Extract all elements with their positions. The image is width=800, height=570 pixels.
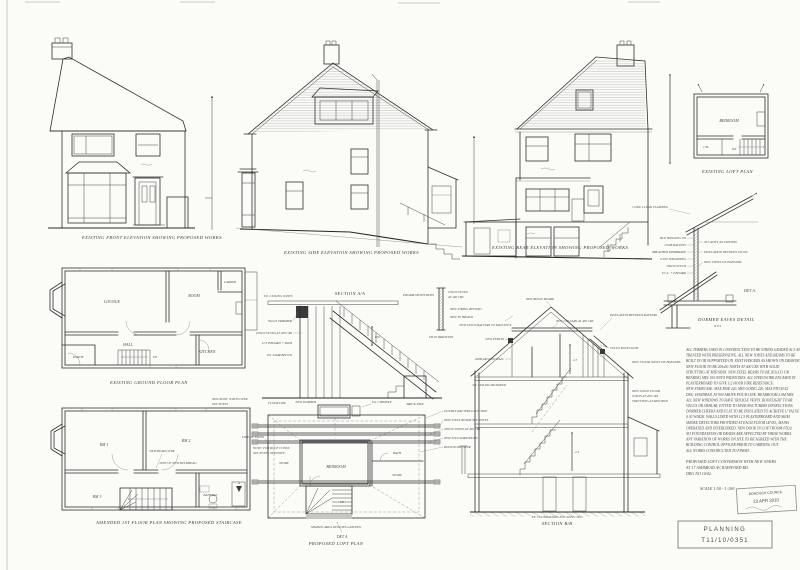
balusters — [344, 307, 424, 380]
notes-block: ALL TIMBERS USED IN CONSTRUCTION TO BE S… — [685, 348, 800, 453]
chimney — [324, 45, 339, 64]
anno-det-5: 100x50 STUDS — [666, 264, 686, 268]
sheet-svg: EXISTING FRONT ELEVATION SHOWING PROPOSE… — [0, 0, 800, 570]
anno-stud-2: AT 400 CRS — [447, 295, 464, 299]
title-line-3: DRG NO 10/02. — [685, 471, 712, 476]
anno-loft-4: NEW STUD PARTITIONS — [443, 436, 478, 440]
anno-pier: BRICK PIER — [407, 402, 424, 406]
anno-det-3: BREATHER MEMBRANE — [652, 250, 686, 254]
note-line: PLASTERBOARD TO GIVE 1/2 HOUR FIRE RESIS… — [685, 382, 774, 386]
front-windows — [72, 134, 160, 156]
caption-det-a: DORMER EAVES DETAIL — [697, 317, 754, 322]
caption-first: AMENDED 1ST FLOOR PLAN SHOWING PROPOSED … — [95, 520, 242, 525]
loft-floor — [475, 377, 628, 381]
note-roof-joists-2: SEE NOTES — [212, 402, 228, 406]
room-label-larder: LARDER — [223, 280, 236, 284]
caption-stair-section: SECTION A/A — [335, 291, 365, 296]
room-label-lounge: LOUNGE — [103, 299, 121, 304]
note-line: ALL NEW WINDOWS TO HAVE TRICKLE VENTS. R… — [685, 398, 793, 402]
bay — [50, 282, 65, 318]
lower-flight — [520, 420, 560, 475]
rear-windows-first — [526, 134, 611, 161]
note-line: BUILT IN OR SUPPORTED ON JOIST HANGERS A… — [686, 359, 800, 363]
anno-det-1: TILE HANGING ON — [659, 236, 687, 240]
stud-detail: 100x50 STUDS AT 400 CRS P.BOARD BOTH SID… — [402, 288, 468, 339]
front-bay-section — [460, 446, 467, 474]
anno-loft-5: ROOFLIGHT OVER — [443, 445, 471, 449]
external-stair — [604, 227, 628, 257]
handrail — [400, 203, 445, 225]
plan-windows — [80, 268, 210, 368]
anno-ceiling: EX. CEILING RETAINED — [472, 383, 507, 387]
room-label-porch: PORCH — [72, 355, 84, 359]
pier — [573, 477, 586, 511]
dim-first: 2.3 — [575, 450, 579, 454]
anno-det-7: CODE 4 LEAD FLASHING — [632, 205, 668, 209]
note-line: NEW STAIRCASE: MAX RISE 220, MIN GOING 2… — [685, 387, 788, 392]
anno-studs: 100x50 STUDS AT 400 CRS — [256, 331, 292, 335]
side-windows — [286, 149, 368, 209]
stair-label-up: UP — [153, 355, 157, 359]
anno-det-2: 25x38 BATTENS — [664, 243, 686, 247]
room-label-rm1: RM 1 — [99, 442, 109, 447]
note-bulkhead: LINE OF NEW BULKHEAD — [159, 461, 198, 465]
scribble — [303, 170, 316, 172]
note-line: NEW FLOOR TO BE 200x50 JOISTS AT 400 CRS… — [685, 365, 780, 369]
anno-det-4: 9 PLY SHEATHING — [660, 257, 687, 261]
chimney-breast — [757, 112, 765, 126]
steps — [380, 386, 404, 398]
handrail — [336, 301, 439, 382]
trimmer — [296, 306, 308, 318]
front-elevation: EXISTING FRONT ELEVATION SHOWING PROPOSE… — [48, 38, 222, 240]
anno-ex-stair: EX. STAIR BELOW — [266, 353, 292, 357]
ground-floor-plan: LOUNGE ROOM KITCHEN HALL PORCH LARDER UP… — [50, 268, 257, 385]
stair-label-dn: DN — [731, 147, 737, 151]
note-line: ALL WORKS CONSTRUCTED TO FINISH. — [685, 449, 750, 453]
landing-shading — [306, 514, 352, 519]
porch — [238, 169, 258, 227]
anno-floor-3: STRUTTING AT MID SPAN — [632, 399, 669, 403]
note-roof-joists-1: NEW ROOF JOISTS OVER — [211, 397, 248, 401]
note-line: BEARING MIN 100 ONTO PADSTONES. ALL STEE… — [686, 376, 796, 380]
note-line: OPERATED AND INTERLINKED. NEW DOOR TO LO… — [686, 426, 793, 430]
anno-dormer: NEW DORMER — [294, 400, 316, 404]
anno-trimmer: 50x225 TRIMMER — [268, 319, 292, 323]
bay — [51, 424, 65, 456]
stair-string — [330, 311, 436, 399]
anno-stud-3: P.BOARD BOTH SIDES — [402, 293, 435, 297]
det-a-label: DET A. — [743, 288, 756, 293]
anno-landing-shade: SHADED AREA DENOTES LANDING — [311, 525, 362, 529]
anno-insulation: INSULATION BETWEEN RAFTERS — [609, 313, 657, 317]
room-label-bath: BATH — [393, 451, 402, 455]
note-line: ALL TIMBERS USED IN CONSTRUCTION TO BE S… — [685, 348, 800, 352]
caption-proposed-loft: PROPOSED LOFT PLAN — [308, 541, 364, 546]
anno-ashlar: ASHLAR STUD WALL — [474, 357, 504, 361]
anno-dim-850: 850 — [375, 335, 380, 339]
room-label-bedroom: BEDROOM — [326, 464, 346, 469]
room-label-bath: BATH RM — [203, 493, 217, 497]
ground-floor — [468, 474, 660, 478]
caption-ground: EXISTING GROUND FLOOR PLAN — [109, 380, 188, 385]
caption-section-bb: SECTION B/B — [542, 521, 573, 526]
joist-diagonal — [660, 272, 717, 313]
outbuilding — [464, 219, 520, 256]
bay-window — [66, 162, 130, 223]
anno-stud-1: 100x50 STUDS — [448, 290, 468, 294]
caption-rear: EXISTING REAR ELEVATION SHOWING PROPOSED… — [491, 245, 629, 250]
room-label-rm3: RM 3 — [92, 494, 102, 499]
anno-foundations: EX. FOUNDATIONS NOT AFFECTED — [531, 515, 583, 519]
planning-label: PLANNING — [704, 527, 747, 533]
note-line: DORMER CHEEKS AND FLAT TO BE INSULATED T… — [685, 410, 800, 414]
anno-floor-1: NEW 200x50 FLOOR — [631, 389, 660, 393]
roof-hips — [268, 415, 425, 518]
det-a-scale: N.T.S. — [713, 324, 722, 328]
anno-chimney: EX. CHIMNEY — [371, 400, 393, 404]
stamp-signature — [745, 505, 781, 511]
scale-note: SCALE 1:50 - 1:100 — [700, 486, 735, 491]
title-block: PROPOSED LOFT CONVERSION WITH NEW STAIRS… — [685, 459, 776, 491]
section-letter: A — [237, 481, 240, 485]
caption-existing-loft: EXISTING LOFT PLAN — [701, 169, 753, 174]
room-label-cyl: CYL — [703, 145, 709, 149]
first-floor — [475, 424, 628, 428]
note-line: SMOKE DETECTORS PROVIDED AT EACH FLOOR L… — [686, 421, 789, 426]
received-stamp: BOROUGH COUNCIL 23 APR 2010 — [736, 485, 796, 514]
caption-side: EXISTING SIDE ELEVATION SHOWING PROPOSED… — [283, 250, 419, 255]
anno-loft-left: LINE OF EAVES — [241, 435, 264, 439]
note-line: TREATED WITH PRESERVATIVE. ALL NEW JOIST… — [686, 354, 796, 358]
anno-det-8: 50 CAVITY AS EXISTING — [704, 240, 738, 244]
room-label-store-left: STORE — [279, 461, 289, 465]
existing-loft-plan: BEDROOM CYL DN EXISTING LOFT PLAN — [670, 74, 768, 174]
dormer-plan — [318, 405, 360, 418]
anno-det-6: V.C.L. + P.BOARD — [662, 271, 687, 275]
anno-pboard: 12.5 P.BOARD + SKIM — [262, 341, 293, 345]
planning-ref: T11/10/0351 — [701, 537, 749, 544]
outbuilding — [245, 272, 257, 330]
anno-collars: NEW COLLARS AT 400 CRS — [555, 319, 594, 323]
anno-purlin: NEW PURLIN — [484, 337, 505, 341]
loft-stair — [306, 476, 352, 519]
anno-rafters: NEW 100x50 RAFTERS TO MATCH EX. — [458, 323, 512, 327]
rear-extension-section — [628, 417, 659, 474]
anno-hangers: NEW FLOOR JOISTS ON HANGERS — [631, 360, 681, 364]
anno-ceiling-joists: EX. CEILING JOISTS — [263, 294, 293, 298]
caption-front: EXISTING FRONT ELEVATION SHOWING PROPOSE… — [81, 235, 222, 240]
note-line: VELUX OR SIMILAR, FITTED TO MANUFACTURER… — [686, 404, 794, 409]
room-label-hall: HALL — [122, 342, 134, 347]
room-label-rm2: RM 2 — [181, 438, 191, 443]
brick-pier — [404, 376, 426, 398]
stair-section: SECTION A/A EX. CEILING JOISTS 50x225 TR… — [256, 291, 482, 406]
note-line: STRUTTING AT MID SPAN. NEW STEEL BEAMS T… — [686, 370, 789, 374]
proposed-loft-plan: BEDROOM STORE BATH STORE UP DOUBLE RAFTE… — [241, 400, 489, 546]
dim-loft: 2.3 — [573, 358, 577, 362]
anno-det-10: NEW JOISTS ON HANGERS — [703, 260, 742, 264]
det-a-detail: TILE HANGING ON 25x38 BATTENS BREATHER M… — [632, 193, 758, 328]
anno-loft-3: 200x50 JOISTS AT 400 CRS — [444, 427, 481, 431]
title-line-1: PROPOSED LOFT CONVERSION WITH NEW STAIRS — [685, 459, 776, 464]
pier — [543, 477, 556, 511]
det-a-ref: DET A — [336, 534, 348, 539]
anno-ridge: NEW RIDGE BOARD — [525, 297, 555, 301]
rear-elevation: EXISTING REAR ELEVATION SHOWING PROPOSED… — [462, 41, 652, 259]
room-label-bedroom: BEDROOM — [719, 118, 739, 123]
room-label-room: ROOM — [187, 293, 200, 298]
section-bb: 2.3 2.3 NEW RIDGE BOARD NEW 100x50 RAFTE… — [458, 297, 681, 526]
planning-box: PLANNING T11/10/0351 — [678, 521, 772, 548]
anno-floor-line: FLOOR LINE — [267, 401, 286, 405]
note-line: NO FOUNDATIONS OR DRAINS ARE AFFECTED BY… — [685, 432, 792, 436]
anno-loft-2: NEW STEEL BEAMS SEE NOTES — [443, 418, 489, 422]
anno-string: NEW STRING BEYOND — [449, 307, 482, 311]
garden-level — [526, 227, 579, 256]
anno-det-9: INSULATION BETWEEN STUDS — [703, 250, 748, 254]
note-line: DEG. HANDRAIL AT 900 ABOVE PITCH LINE. H… — [685, 393, 794, 397]
note-line: 0.30 W/M2K. WALLS LINED WITH 12.5 PLASTE… — [686, 415, 791, 419]
drawing-sheet: EXISTING FRONT ELEVATION SHOWING PROPOSE… — [0, 0, 800, 570]
scribble — [141, 164, 152, 165]
loft-rooms-right — [372, 442, 423, 486]
stamp-council: BOROUGH COUNCIL — [749, 490, 783, 496]
stamp-date: 23 APR 2010 — [753, 497, 780, 504]
stair-label-up: UP — [340, 500, 344, 504]
note-roof-const-1: NOTE: FOR ROOF CONST. — [252, 446, 290, 450]
anno-stud-caption: STUD PARTITION — [429, 335, 454, 339]
room-label-store-right: STORE — [392, 473, 402, 477]
external-walls — [475, 371, 628, 512]
note-line: BUILDING CONTROL OFFICER PRIOR TO CARRYI… — [686, 443, 779, 447]
stairwell-walls — [532, 334, 560, 377]
room-label-kitchen: KITCHEN — [198, 349, 216, 354]
note-beam: NEW BEAM OVER — [149, 449, 175, 453]
upper-flight — [532, 368, 571, 432]
anno-treads: NEW 38 TREADS — [449, 315, 473, 319]
front-door — [133, 177, 165, 225]
note-line: ANY VARIATION OF WORKS ON SITE TO BE AGR… — [685, 438, 787, 442]
anno-loft-1: DOUBLE RAFTERS EACH SIDE — [443, 409, 487, 413]
anno-floor-2: JOISTS AT 400 CRS — [632, 394, 658, 398]
section-arrow-a — [236, 486, 242, 492]
rear-extension — [516, 178, 603, 222]
door-swings — [126, 321, 209, 350]
loft-stair — [738, 139, 764, 155]
steps — [428, 244, 460, 259]
anno-velux: VELUX ROOFLIGHT — [610, 346, 639, 350]
note-roof-const-2: SEE NOTES OPPOSITE — [253, 451, 285, 455]
first-floor-plan: A RM 1 RM 2 RM 3 BATH RM NEW BEAM OVER L… — [51, 397, 290, 525]
purlin — [508, 338, 513, 343]
stair — [118, 350, 150, 365]
side-elevation: EXISTING SIDE ELEVATION SHOWING PROPOSED… — [236, 41, 462, 259]
